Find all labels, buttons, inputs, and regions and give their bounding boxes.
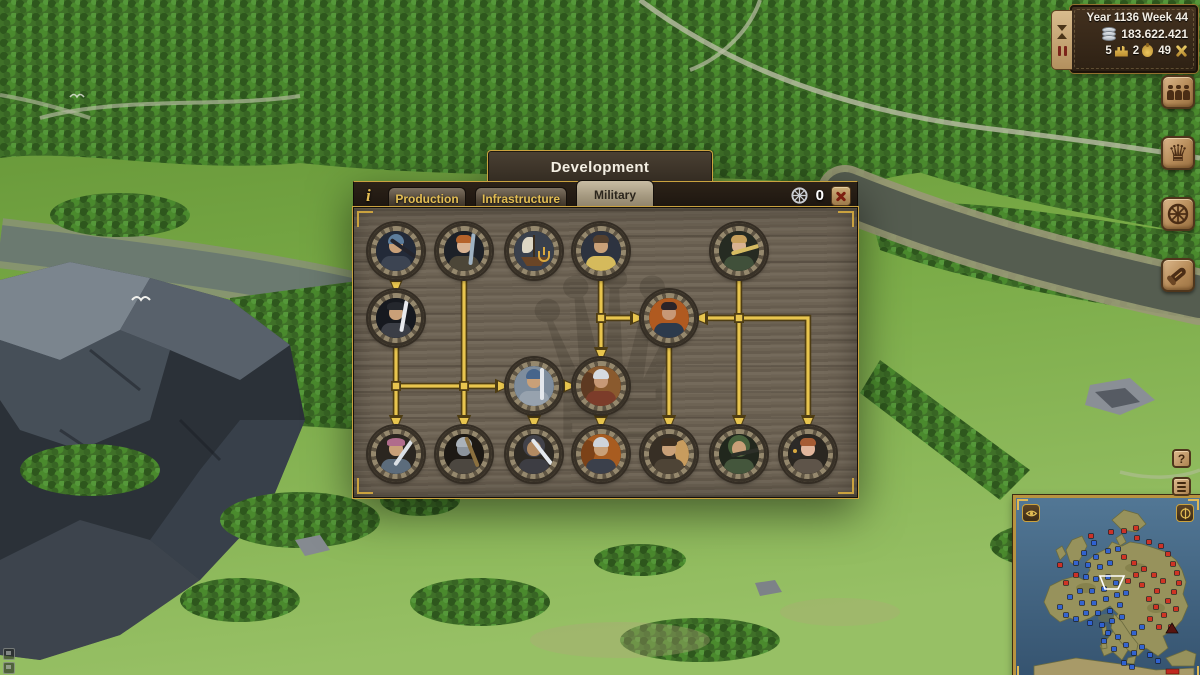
map-marker-blue — [1147, 653, 1152, 658]
map-marker-red — [1063, 581, 1068, 586]
panel-title: Development — [487, 150, 713, 183]
map-marker-blue — [1114, 593, 1119, 598]
map-marker-blue — [1063, 613, 1068, 618]
portrait-part — [519, 459, 549, 474]
messages-button[interactable] — [1161, 258, 1195, 292]
map-marker-red — [1057, 563, 1062, 568]
kingdom-button[interactable]: ♛ — [1161, 136, 1195, 170]
tech-node-falchion-infantry[interactable] — [506, 426, 562, 482]
map-marker-red — [1073, 573, 1078, 578]
coins-icon — [1102, 27, 1116, 41]
hud-stat: 2 — [1133, 45, 1153, 57]
map-marker-blue — [1077, 589, 1082, 594]
crown-icon: ♛ — [1168, 142, 1189, 165]
tech-node-light-cavalry[interactable] — [573, 358, 629, 414]
map-marker-red — [1146, 540, 1151, 545]
panel-corner-ornament — [357, 478, 373, 494]
tech-tree-area: ♛ — [353, 207, 858, 498]
map-marker-red — [1141, 567, 1146, 572]
scroll-icon — [1166, 263, 1190, 287]
tech-node-warhammer-infantry[interactable] — [368, 223, 424, 279]
goods-bag-icon — [1142, 45, 1153, 57]
portrait-part — [654, 323, 684, 338]
map-marker-blue — [1117, 603, 1122, 608]
map-marker-blue — [1067, 595, 1072, 600]
map-marker-red — [1161, 613, 1166, 618]
map-marker-red — [1165, 599, 1170, 604]
map-marker-blue — [1107, 561, 1112, 566]
falconer-portrait — [788, 434, 828, 474]
map-marker-blue — [1123, 643, 1128, 648]
debug-icon-1 — [3, 648, 15, 660]
tech-node-warship[interactable] — [506, 223, 562, 279]
menu-button[interactable] — [1172, 477, 1191, 496]
map-marker-blue — [1111, 647, 1116, 652]
map-marker-blue — [1155, 659, 1160, 664]
research-points-icon — [790, 186, 809, 205]
panel-corner-ornament — [838, 478, 854, 494]
time-controls[interactable] — [1051, 10, 1072, 70]
tech-node-mounted-scout[interactable] — [641, 426, 697, 482]
debug-icon-2 — [3, 662, 15, 674]
portrait-part — [593, 369, 609, 379]
pause-icon[interactable] — [1058, 46, 1067, 56]
tech-node-axe-militia[interactable] — [368, 426, 424, 482]
map-marker-blue — [1121, 661, 1126, 666]
map-marker-blue — [1129, 665, 1134, 670]
portrait-part — [456, 235, 472, 243]
portrait-part — [661, 302, 677, 310]
map-marker-blue — [1101, 639, 1106, 644]
map-marker-blue — [1105, 549, 1110, 554]
bardiche-infantry-portrait — [444, 231, 484, 271]
portrait-part — [387, 438, 405, 446]
map-marker-blue — [1131, 651, 1136, 656]
panel-corner-ornament — [357, 211, 373, 227]
warhammer-infantry-portrait — [376, 231, 416, 271]
poleaxe-infantry-portrait — [376, 298, 416, 338]
map-marker-blue — [1139, 625, 1144, 630]
map-marker-red — [1171, 590, 1176, 595]
minimap-eye-button[interactable] — [1022, 504, 1040, 522]
panel-corner-ornament — [838, 211, 854, 227]
portrait-part — [586, 459, 616, 474]
portrait-part — [593, 235, 609, 243]
tab-military[interactable]: Military — [576, 180, 654, 209]
map-marker-red — [1160, 579, 1165, 584]
portrait-part — [381, 256, 411, 271]
tech-node-bardiche-infantry[interactable] — [436, 223, 492, 279]
map-marker-red — [1170, 562, 1175, 567]
map-marker-blue — [1103, 597, 1108, 602]
map-marker-red — [1146, 597, 1151, 602]
map-marker-blue — [1093, 555, 1098, 560]
hud-stat-value: 5 — [1105, 45, 1111, 57]
portrait-part — [724, 256, 754, 271]
portrait-part — [724, 459, 754, 474]
map-marker-red — [1131, 561, 1136, 566]
map-marker-blue — [1091, 601, 1096, 606]
map-marker-red — [1121, 529, 1126, 534]
map-marker-red — [1153, 605, 1158, 610]
map-marker-blue — [1087, 621, 1092, 626]
map-marker-red — [1134, 536, 1139, 541]
hourglass-icon — [1057, 25, 1067, 39]
map-marker-blue — [1083, 611, 1088, 616]
map-marker-blue — [1085, 563, 1090, 568]
light-cavalry-portrait — [581, 366, 621, 406]
trade-button[interactable] — [1161, 197, 1195, 231]
map-marker-red — [1165, 552, 1170, 557]
map-marker-blue — [1109, 619, 1114, 624]
tech-node-commander[interactable] — [641, 290, 697, 346]
longbowman-portrait — [719, 231, 759, 271]
map-marker-red — [1133, 573, 1138, 578]
map-marker-red — [1139, 583, 1144, 588]
development-panel: Development i ProductionInfrastructureMi… — [353, 150, 858, 498]
tech-node-swordsman[interactable] — [506, 358, 562, 414]
hud-stat: 49 — [1158, 44, 1189, 58]
hud-stat: 5 — [1105, 45, 1127, 57]
close-button[interactable] — [831, 186, 851, 206]
portrait-part — [586, 391, 616, 406]
population-button[interactable] — [1161, 75, 1195, 109]
map-marker-blue — [1081, 551, 1086, 556]
map-marker-red — [1088, 534, 1093, 539]
map-marker-blue — [1083, 575, 1088, 580]
swordsman-portrait — [514, 366, 554, 406]
map-marker-blue — [1119, 615, 1124, 620]
map-marker-blue — [1139, 645, 1144, 650]
map-marker-blue — [1073, 617, 1078, 622]
map-marker-blue — [1099, 623, 1104, 628]
military-icon — [1174, 44, 1189, 58]
warship-portrait — [514, 231, 554, 271]
tech-node-scouting[interactable] — [573, 223, 629, 279]
map-marker-blue — [1089, 589, 1094, 594]
map-marker-red — [1154, 589, 1159, 594]
map-marker-blue — [1093, 577, 1098, 582]
portrait-part — [793, 459, 823, 474]
map-marker-red — [1158, 544, 1163, 549]
tab-production[interactable]: Production — [388, 187, 466, 209]
people-icon — [1167, 85, 1189, 100]
panel-tab-bar: i ProductionInfrastructureMilitary 0 — [353, 181, 858, 210]
tab-infrastructure[interactable]: Infrastructure — [475, 187, 567, 209]
map-marker-red — [1151, 573, 1156, 578]
scouting-portrait — [581, 231, 621, 271]
tech-node-crossbowman[interactable] — [711, 426, 767, 482]
map-marker-red — [1133, 526, 1138, 531]
mounted-scout-portrait — [649, 434, 689, 474]
info-icon[interactable]: i — [366, 186, 371, 206]
map-marker-blue — [1057, 605, 1062, 610]
map-marker-red — [1174, 571, 1179, 576]
map-marker-red — [1156, 625, 1161, 630]
hud-status-panel: Year 1136 Week 44 183.622.421 5249 — [1070, 5, 1198, 73]
map-marker-blue — [1073, 561, 1078, 566]
map-marker-blue — [1115, 635, 1120, 640]
portrait-part — [593, 437, 609, 447]
treasury-amount: 183.622.421 — [1121, 27, 1188, 41]
map-marker-red — [1147, 617, 1152, 622]
portrait-part — [519, 391, 549, 406]
help-button[interactable]: ? — [1172, 449, 1191, 468]
map-marker-blue — [1079, 601, 1084, 606]
tech-node-mace-knight[interactable] — [436, 426, 492, 482]
map-marker-blue — [1097, 565, 1102, 570]
crossbowman-portrait — [719, 434, 759, 474]
map-marker-red — [1121, 555, 1126, 560]
minimap-europe — [1016, 498, 1200, 675]
hud-stat-value: 2 — [1133, 45, 1139, 57]
falchion-infantry-portrait — [514, 434, 554, 474]
knight-portrait — [581, 434, 621, 474]
portrait-part — [533, 235, 535, 259]
portrait-part — [731, 235, 747, 243]
tech-node-longbowman[interactable] — [711, 223, 767, 279]
menu-bars-icon — [1177, 482, 1186, 492]
wheel-icon — [1166, 202, 1190, 226]
minimap-compass-button[interactable] — [1176, 504, 1194, 522]
axe-militia-portrait — [376, 434, 416, 474]
map-marker-red — [1173, 607, 1178, 612]
mace-knight-portrait — [444, 434, 484, 474]
panel-title-text: Development — [551, 159, 650, 176]
help-icon: ? — [1178, 452, 1185, 466]
portrait-part — [800, 438, 816, 446]
portrait-part — [586, 256, 616, 271]
minimap-badge — [1166, 669, 1179, 674]
portrait-part — [449, 256, 479, 271]
game-date: Year 1136 Week 44 — [1072, 12, 1196, 24]
minimap-panel[interactable] — [1013, 495, 1200, 675]
minimap-corner-ornament — [1017, 666, 1028, 675]
eye-icon — [1025, 507, 1038, 520]
settlement-icon — [1115, 46, 1128, 57]
map-marker-red — [1108, 530, 1113, 535]
tech-node-falconer[interactable] — [780, 426, 836, 482]
map-marker-red — [1176, 581, 1181, 586]
game-screen: Year 1136 Week 44 183.622.421 5249 ♛ — [0, 0, 1200, 675]
map-marker-blue — [1115, 547, 1120, 552]
minimap-corner-ornament — [1188, 666, 1199, 675]
compass-icon — [1179, 507, 1192, 520]
map-marker-blue — [1113, 581, 1118, 586]
map-marker-blue — [1107, 609, 1112, 614]
map-marker-blue — [1105, 631, 1110, 636]
map-marker-blue — [1095, 611, 1100, 616]
portrait-part — [654, 459, 684, 474]
map-marker-blue — [1091, 541, 1096, 546]
commander-portrait — [649, 298, 689, 338]
portrait-part — [540, 368, 544, 400]
hud-stat-value: 49 — [1158, 45, 1171, 57]
tech-node-poleaxe-infantry[interactable] — [368, 290, 424, 346]
portrait-part — [381, 323, 411, 338]
research-points-value: 0 — [816, 187, 824, 204]
map-marker-red — [1125, 579, 1130, 584]
portrait-part — [661, 438, 677, 446]
tech-node-knight[interactable] — [573, 426, 629, 482]
map-marker-blue — [1131, 631, 1136, 636]
map-marker-blue — [1123, 591, 1128, 596]
